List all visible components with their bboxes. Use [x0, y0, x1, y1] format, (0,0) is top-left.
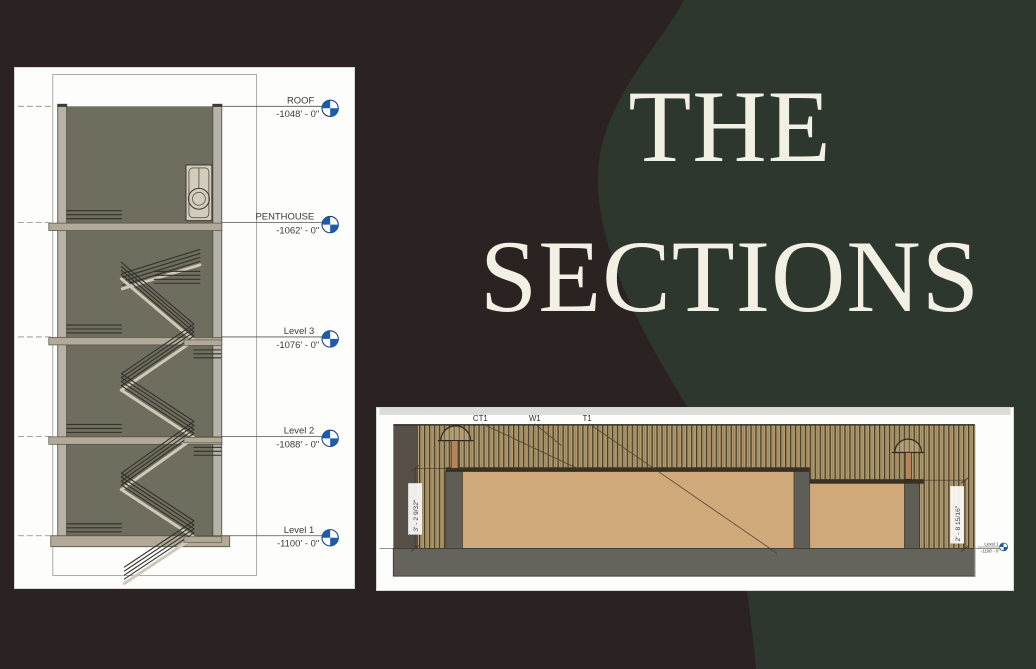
- level-head-icon: [322, 430, 338, 446]
- countertop: [810, 479, 924, 483]
- reception-counter-tall: [446, 467, 810, 548]
- level-head-icon: [322, 100, 338, 116]
- level-elevation: -1100' - 0": [277, 539, 319, 550]
- tag-ct1: CT1: [473, 414, 489, 423]
- marker-elevation: -1100' - 0": [981, 548, 1000, 553]
- stair-section-drawing: ROOF -1048' - 0" PENTHOUSE -1062' - 0" L…: [15, 68, 354, 588]
- title-line-2: SECTIONS: [438, 202, 1022, 352]
- title-line-1: THE: [438, 52, 1022, 202]
- level-name: PENTHOUSE: [256, 212, 315, 223]
- counter-front-panel: [463, 471, 794, 548]
- level-labels: ROOF -1048' - 0" PENTHOUSE -1062' - 0" L…: [256, 95, 320, 549]
- page-title: THE SECTIONS: [438, 52, 1022, 352]
- reception-counter-low: [810, 479, 924, 548]
- tag-w1: W1: [529, 414, 541, 423]
- counter-end-post: [794, 471, 810, 548]
- level-elevation: -1062' - 0": [276, 226, 319, 237]
- counter-end-post: [446, 471, 463, 548]
- dimension-right-text: 2' - 8 15/16": [955, 505, 962, 541]
- level-head-icon: [322, 216, 338, 232]
- level-head-icon: [322, 331, 338, 347]
- left-wall: [58, 106, 67, 537]
- floor-slab: [393, 548, 975, 576]
- level-head-icon: [1000, 543, 1008, 551]
- level-elevation: -1048' - 0": [276, 109, 319, 120]
- keynote-tags: CT1 W1 T1: [473, 414, 593, 423]
- level-name: Level 1: [284, 525, 314, 536]
- counter-section-drawing: CT1 W1 T1 3' - 2 9/32" 2' - 8 15/16" Lev…: [377, 408, 1013, 590]
- hoist-plan-detail: [186, 165, 212, 221]
- level-name: Level 3: [284, 326, 314, 337]
- level-elevation: -1076' - 0": [276, 340, 319, 351]
- counter-end-post: [905, 483, 920, 548]
- level-head-icon: [322, 530, 338, 546]
- tag-t1: T1: [583, 414, 593, 423]
- level-elevation: -1088' - 0": [276, 439, 319, 450]
- counter-section-panel: CT1 W1 T1 3' - 2 9/32" 2' - 8 15/16" Lev…: [376, 407, 1014, 591]
- level-name: Level 2: [284, 425, 314, 436]
- right-wall: [213, 106, 222, 537]
- level-marker-small: Level 1 -1100' - 0": [978, 541, 1008, 553]
- counter-front-panel: [810, 483, 905, 548]
- stair-section-panel: ROOF -1048' - 0" PENTHOUSE -1062' - 0" L…: [14, 67, 355, 589]
- countertop: [446, 467, 810, 471]
- wall-cap: [212, 104, 222, 107]
- level-name: ROOF: [287, 95, 314, 106]
- marker-name: Level 1: [984, 541, 999, 546]
- wall-cap: [57, 104, 67, 107]
- dimension-left-text: 3' - 2 9/32": [413, 499, 420, 532]
